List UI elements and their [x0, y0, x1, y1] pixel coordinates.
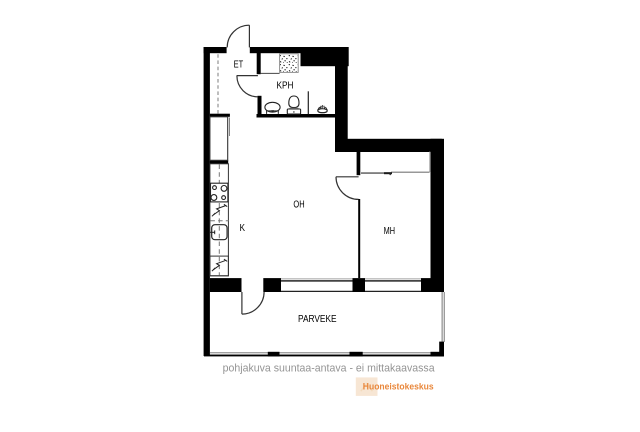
svg-text:K: K [240, 223, 246, 234]
svg-text:pohjakuva suuntaa-antava - ei: pohjakuva suuntaa-antava - ei mittakaava… [223, 362, 436, 374]
svg-text:OH: OH [293, 199, 304, 210]
svg-text:ET: ET [234, 60, 244, 71]
svg-text:KPH: KPH [277, 80, 294, 91]
svg-text:MH: MH [384, 226, 395, 237]
svg-text:Huoneistokeskus: Huoneistokeskus [363, 382, 434, 392]
svg-text:PARVEKE: PARVEKE [298, 314, 337, 325]
